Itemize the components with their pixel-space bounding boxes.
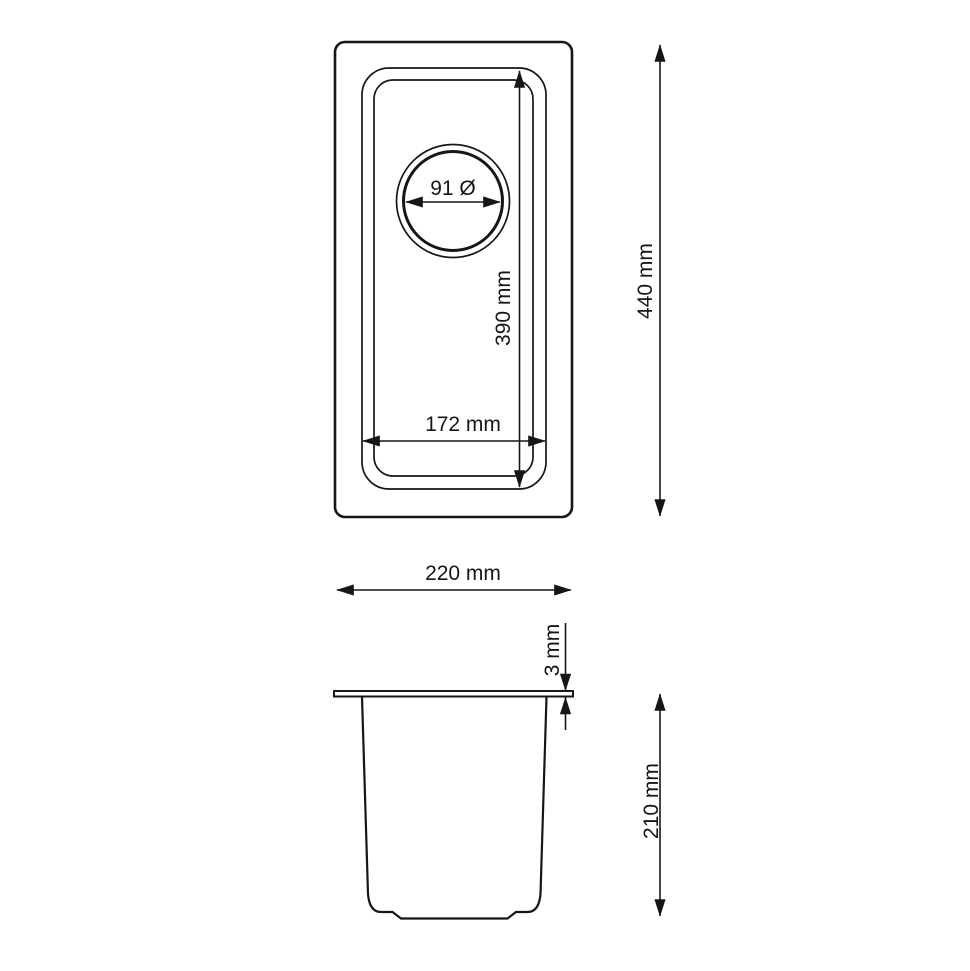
drain-diameter-label: 91 Ø [430, 177, 476, 200]
overall-width-dimension: 220 mm [337, 562, 571, 590]
overall-length-label: 440 mm [634, 243, 657, 319]
drain-diameter-dimension: 91 Ø [406, 177, 500, 202]
drain-outer-circle [397, 145, 510, 258]
overall-width-label: 220 mm [425, 562, 501, 585]
bowl-width-label: 172 mm [425, 413, 501, 436]
bowl-depth-dimension: 210 mm [640, 694, 663, 916]
sink-technical-drawing-page: 91 Ø 390 mm 172 mm 440 mm 220 mm [0, 0, 970, 971]
overall-length-dimension: 440 mm [634, 45, 660, 516]
sink-technical-drawing: 91 Ø 390 mm 172 mm 440 mm 220 mm [0, 0, 970, 971]
sink-outer-edge [335, 42, 572, 517]
rim-thickness-label: 3 mm [541, 624, 564, 677]
top-view: 91 Ø 390 mm 172 mm 440 mm 220 mm [335, 42, 660, 590]
drain-inner-circle [404, 152, 503, 251]
bowl-profile [362, 697, 547, 919]
side-view: 3 mm 210 mm [334, 623, 663, 919]
rim-thickness-dimension: 3 mm [541, 623, 566, 730]
rim-plate [334, 691, 573, 697]
bowl-length-label: 390 mm [492, 270, 515, 346]
bowl-width-dimension: 172 mm [363, 413, 545, 441]
bowl-depth-label: 210 mm [640, 763, 663, 839]
